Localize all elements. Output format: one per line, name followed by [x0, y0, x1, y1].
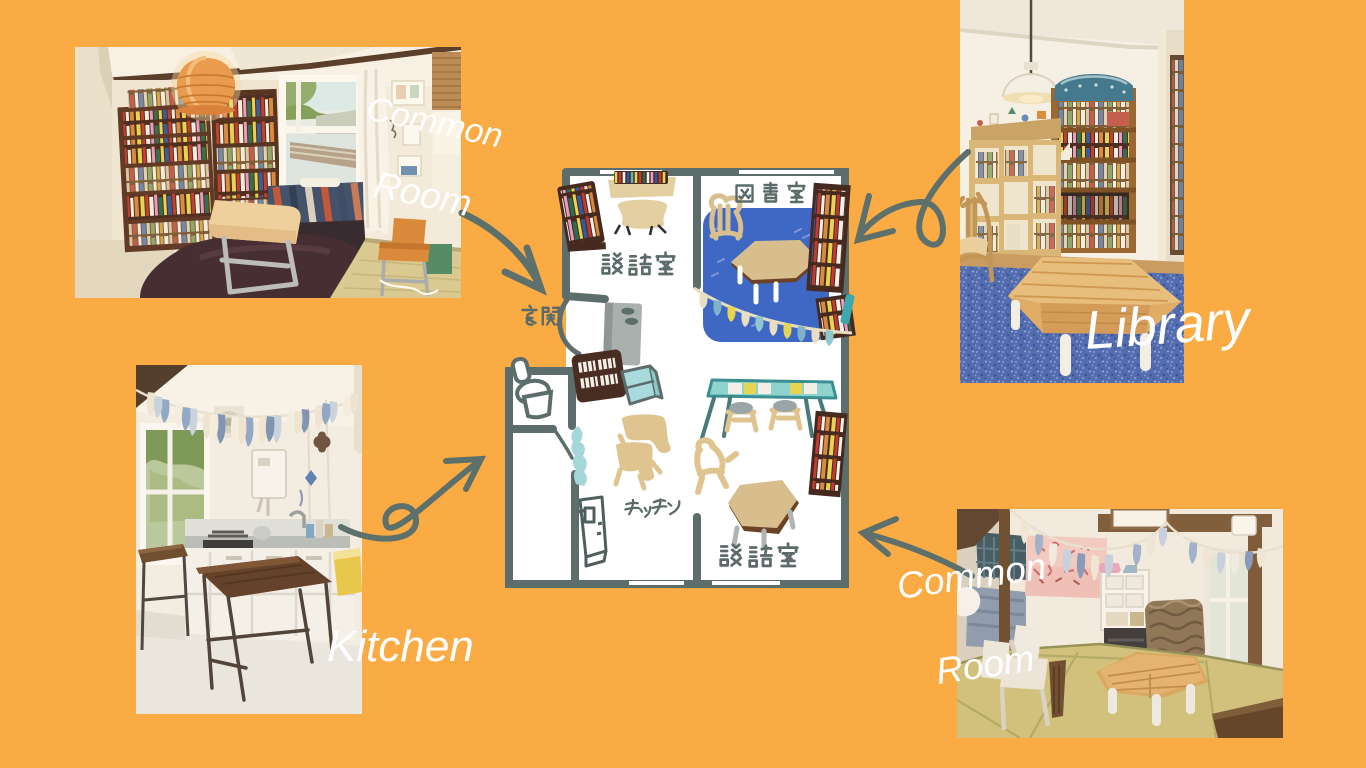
svg-text:Kitchen: Kitchen [327, 622, 474, 671]
svg-text:Library: Library [1083, 289, 1255, 361]
